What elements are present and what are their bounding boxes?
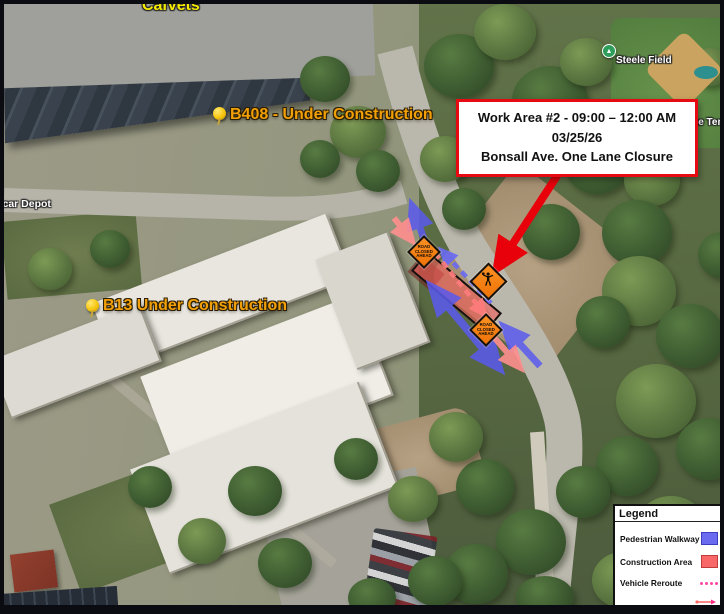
legend-label-pedestrian-walkway: Pedestrian Walkway (620, 534, 699, 544)
vehicle-direction-arrows-icon (694, 598, 718, 605)
callout-line-2: 03/25/26 (463, 128, 691, 148)
construction-area-swatch (701, 555, 718, 568)
legend-label-vehicle-reroute: Vehicle Reroute (620, 578, 682, 588)
work-area-callout: Work Area #2 - 09:00 – 12:00 AM 03/25/26… (456, 99, 698, 177)
park-pin-icon: ▲ (602, 44, 616, 58)
road-closed-text: ROAD CLOSED AHEAD (477, 323, 495, 337)
b408-label: B408 - Under Construction (230, 106, 433, 124)
aerial-map: ROAD CLOSED AHEAD ROAD CLOSED AHEAD B408… (4, 4, 720, 605)
legend-row: Vehicle Reroute (615, 578, 720, 588)
callout-pointer-arrow (501, 165, 564, 262)
legend: Legend Pedestrian Walkway Construction A… (613, 504, 720, 605)
flagger-icon (480, 271, 497, 293)
pushpin-icon (213, 107, 226, 120)
b13-label: B13 Under Construction (103, 297, 287, 315)
calvets-label: CalVets (142, 4, 200, 15)
car-depot-label: tcar Depot (4, 198, 51, 210)
pink-direction-arrow-top (394, 218, 409, 237)
legend-row: Pedestrian Walkway (615, 532, 720, 545)
legend-row: Vehicle Direction (615, 598, 720, 605)
legend-label-construction-area: Construction Area (620, 557, 692, 567)
callout-line-3: Bonsall Ave. One Lane Closure (463, 147, 691, 167)
legend-row: Construction Area (615, 555, 720, 568)
pedestrian-walkway-swatch (701, 532, 718, 545)
callout-line-1: Work Area #2 - 09:00 – 12:00 AM (463, 108, 691, 128)
figure-frame: ROAD CLOSED AHEAD ROAD CLOSED AHEAD B408… (0, 0, 724, 614)
pushpin-icon (86, 299, 99, 312)
road-closed-text: ROAD CLOSED AHEAD (415, 245, 433, 259)
vehicle-reroute-dots-icon (700, 582, 718, 585)
steele-field-label: Steele Field (616, 55, 672, 66)
legend-title: Legend (615, 506, 720, 522)
legend-label-vehicle-direction: Vehicle Direction (620, 603, 687, 605)
